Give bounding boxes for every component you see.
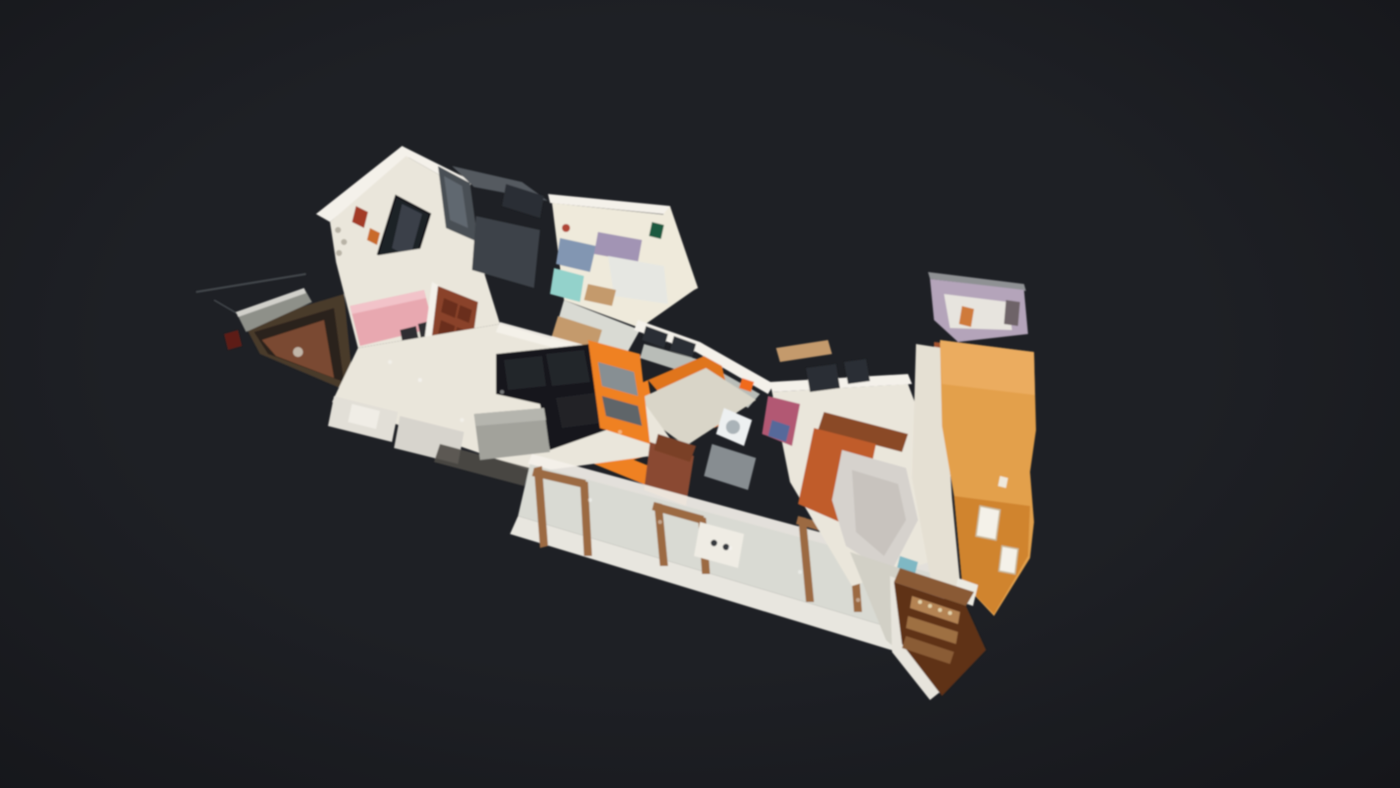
right-wing [912,272,1036,616]
bedroom-window [806,364,840,392]
framed-picture [976,506,1000,540]
model-viewport[interactable] [0,0,1400,788]
bedroom-window [844,359,870,384]
dollhouse-model [0,0,1400,788]
framed-picture [999,546,1018,574]
left-balcony [224,288,354,394]
glass-table [704,444,756,490]
apartment-model [196,146,1036,700]
